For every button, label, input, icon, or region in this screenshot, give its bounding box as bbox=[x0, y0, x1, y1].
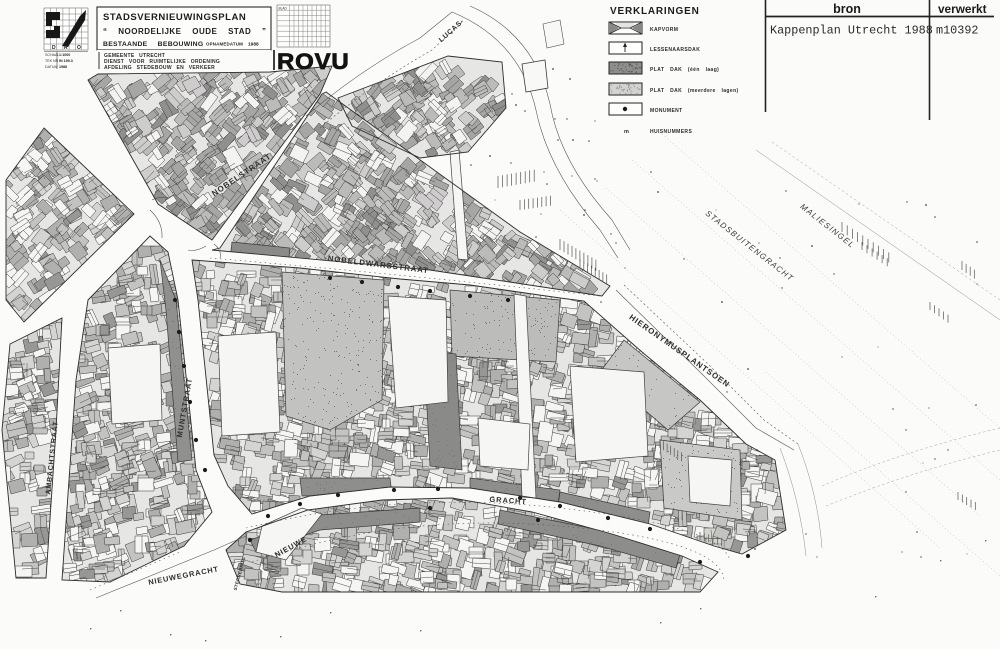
svg-text:“ NOORDELIJKE OUDE STAD ”: “ NOORDELIJKE OUDE STAD ” bbox=[103, 27, 266, 36]
svg-text:KAPVORM: KAPVORM bbox=[650, 27, 678, 33]
svg-text:D: D bbox=[52, 45, 56, 51]
svg-text:1988: 1988 bbox=[59, 65, 67, 69]
svg-text:MONUMENT: MONUMENT bbox=[650, 108, 683, 114]
svg-text:PLAT DAK (meerdere lagen): PLAT DAK (meerdere lagen) bbox=[650, 88, 739, 94]
svg-text:TEK NR: TEK NR bbox=[45, 59, 59, 63]
svg-text:IN 199-3: IN 199-3 bbox=[59, 59, 73, 63]
svg-text:O: O bbox=[77, 45, 81, 51]
svg-text:DATUM: DATUM bbox=[45, 65, 58, 69]
svg-text:ROVU: ROVU bbox=[277, 49, 350, 74]
svg-text:1988: 1988 bbox=[248, 42, 259, 48]
svg-text:SCHAAL: SCHAAL bbox=[45, 53, 59, 57]
svg-text:m10392: m10392 bbox=[936, 24, 978, 38]
svg-text:STADSVERNIEUWINGSPLAN: STADSVERNIEUWINGSPLAN bbox=[103, 12, 246, 23]
svg-text:1:1000: 1:1000 bbox=[59, 53, 70, 57]
svg-text:m: m bbox=[624, 129, 629, 135]
svg-text:R: R bbox=[64, 45, 68, 51]
svg-text:PLAT DAK (één laag): PLAT DAK (één laag) bbox=[650, 67, 719, 73]
svg-text:BLAD: BLAD bbox=[279, 7, 288, 11]
svg-text:bron: bron bbox=[833, 2, 861, 16]
svg-text:OPNAMEDATUM: OPNAMEDATUM bbox=[206, 42, 243, 47]
svg-text:VERKLARINGEN: VERKLARINGEN bbox=[610, 6, 700, 17]
svg-text:verwerkt: verwerkt bbox=[938, 2, 987, 16]
svg-text:AFDELING STEDEBOUW EN VERKEER: AFDELING STEDEBOUW EN VERKEER bbox=[104, 65, 215, 71]
svg-text:BESTAANDE BEBOUWING: BESTAANDE BEBOUWING bbox=[103, 41, 203, 48]
svg-text:HUISNUMMERS: HUISNUMMERS bbox=[650, 129, 692, 135]
svg-text:LESSENAARSDAK: LESSENAARSDAK bbox=[650, 47, 700, 53]
svg-text:Kappenplan Utrecht 1988: Kappenplan Utrecht 1988 bbox=[770, 24, 933, 38]
